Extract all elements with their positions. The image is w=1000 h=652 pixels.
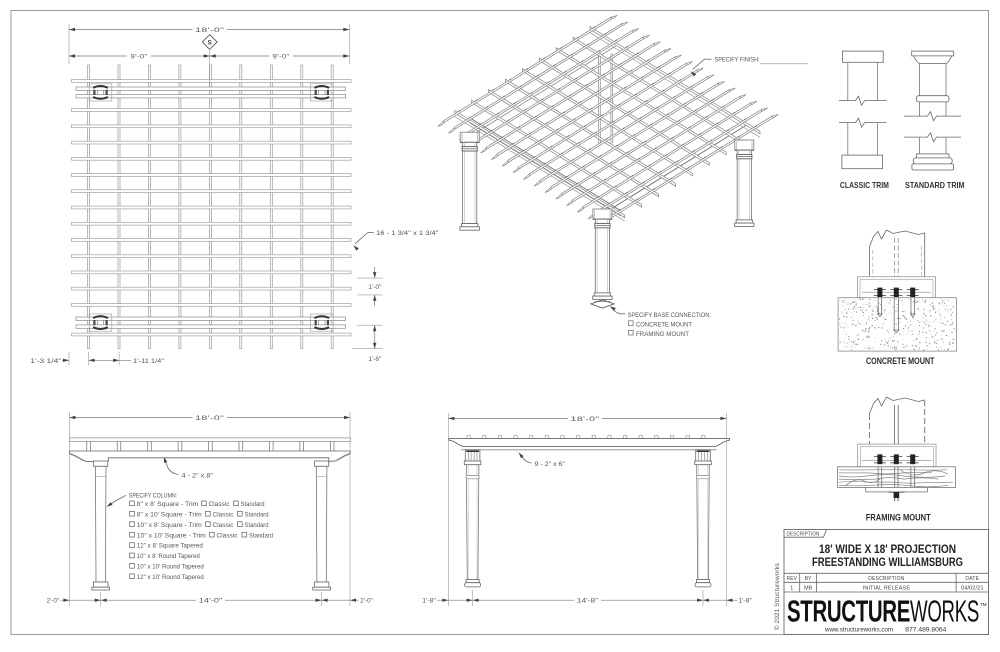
svg-text:1'-0": 1'-0" bbox=[368, 284, 382, 291]
svg-text:TM: TM bbox=[980, 602, 987, 607]
svg-text:18'-0": 18'-0" bbox=[571, 416, 601, 423]
svg-text:12" x 8' Square Tapered: 12" x 8' Square Tapered bbox=[137, 543, 203, 550]
svg-text:2'-0": 2'-0" bbox=[360, 598, 373, 605]
svg-text:SPECIFY FINISH:: SPECIFY FINISH: bbox=[715, 57, 760, 64]
svg-text:INITIAL RELEASE: INITIAL RELEASE bbox=[863, 585, 911, 591]
svg-text:1'-8": 1'-8" bbox=[738, 598, 752, 605]
svg-text:Classic: Classic bbox=[209, 501, 230, 508]
svg-text:DESCRIPTION: DESCRIPTION bbox=[787, 531, 820, 537]
svg-text:SPECIFY COLUMN:: SPECIFY COLUMN: bbox=[129, 492, 178, 499]
svg-text:FRAMING MOUNT: FRAMING MOUNT bbox=[866, 513, 931, 523]
svg-text:CLASSIC TRIM: CLASSIC TRIM bbox=[840, 181, 889, 190]
svg-text:Standard: Standard bbox=[245, 511, 269, 518]
svg-text:STRUCTURE: STRUCTURE bbox=[787, 595, 910, 629]
svg-text:14'-0": 14'-0" bbox=[199, 598, 223, 605]
svg-text:© 2021 Structureworks: © 2021 Structureworks bbox=[774, 563, 781, 630]
svg-text:8" x 8' Square - Trim: 8" x 8' Square - Trim bbox=[137, 501, 199, 508]
svg-text:SPECIFY BASE CONNECTION:: SPECIFY BASE CONNECTION: bbox=[628, 312, 712, 319]
svg-text:14'-8": 14'-8" bbox=[577, 598, 599, 605]
svg-text:10" x 10' Round Tapered: 10" x 10' Round Tapered bbox=[137, 564, 204, 571]
svg-text:DATE: DATE bbox=[965, 576, 979, 582]
svg-text:WORKS: WORKS bbox=[910, 595, 979, 629]
svg-text:9'-0": 9'-0" bbox=[131, 54, 148, 61]
svg-text:18'-0": 18'-0" bbox=[195, 27, 225, 34]
svg-text:18'-0": 18'-0" bbox=[195, 415, 225, 422]
svg-text:BY: BY bbox=[805, 576, 812, 582]
svg-text:CONCRETE MOUNT: CONCRETE MOUNT bbox=[866, 356, 935, 366]
svg-text:04/02/21: 04/02/21 bbox=[961, 585, 984, 591]
svg-text:10" x 8' Round Tapered: 10" x 8' Round Tapered bbox=[137, 553, 200, 560]
svg-text:8" x 10' Square - Trim: 8" x 10' Square - Trim bbox=[137, 511, 202, 518]
svg-text:Classic: Classic bbox=[217, 532, 238, 539]
svg-text:1'-11 1/4": 1'-11 1/4" bbox=[133, 358, 165, 365]
svg-text:FREESTANDING WILLIAMSBURG: FREESTANDING WILLIAMSBURG bbox=[812, 555, 963, 569]
svg-text:Classic: Classic bbox=[213, 511, 234, 518]
svg-text:Standard: Standard bbox=[245, 522, 269, 529]
svg-text:1'-8": 1'-8" bbox=[422, 598, 436, 605]
svg-text:S: S bbox=[208, 40, 213, 47]
svg-text:1'-6": 1'-6" bbox=[368, 356, 382, 363]
svg-text:Standard: Standard bbox=[241, 501, 265, 508]
svg-text:16 - 1 3/4" x 1 3/4": 16 - 1 3/4" x 1 3/4" bbox=[376, 230, 439, 237]
svg-text:Classic: Classic bbox=[213, 522, 234, 529]
svg-text:DESCRIPTION: DESCRIPTION bbox=[868, 576, 905, 582]
svg-text:10" x 10' Square - Trim: 10" x 10' Square - Trim bbox=[137, 532, 206, 539]
svg-text:CONCRETE MOUNT: CONCRETE MOUNT bbox=[636, 322, 692, 329]
svg-text:FRAMING MOUNT: FRAMING MOUNT bbox=[636, 331, 689, 338]
svg-text:1: 1 bbox=[790, 585, 793, 591]
svg-text:10" x 8' Square - Trim: 10" x 8' Square - Trim bbox=[137, 522, 202, 529]
svg-text:Standard: Standard bbox=[249, 532, 273, 539]
svg-text:9 - 2" x 6": 9 - 2" x 6" bbox=[535, 461, 566, 468]
svg-text:4 - 2" x 8": 4 - 2" x 8" bbox=[182, 473, 214, 480]
svg-text:REV: REV bbox=[787, 576, 798, 582]
svg-text:STANDARD TRIM: STANDARD TRIM bbox=[905, 181, 965, 190]
svg-text:18' WIDE X 18' PROJECTION: 18' WIDE X 18' PROJECTION bbox=[819, 542, 956, 556]
svg-text:877.489.8064: 877.489.8064 bbox=[905, 627, 946, 634]
svg-text:1'-3 1/4": 1'-3 1/4" bbox=[30, 358, 62, 365]
svg-text:2'-0": 2'-0" bbox=[47, 598, 60, 605]
svg-text:www.structureworks.com: www.structureworks.com bbox=[824, 627, 893, 634]
svg-text:12" x 10' Round Tapered: 12" x 10' Round Tapered bbox=[137, 574, 204, 581]
svg-text:MB: MB bbox=[804, 585, 812, 591]
svg-text:9'-0": 9'-0" bbox=[273, 54, 290, 61]
